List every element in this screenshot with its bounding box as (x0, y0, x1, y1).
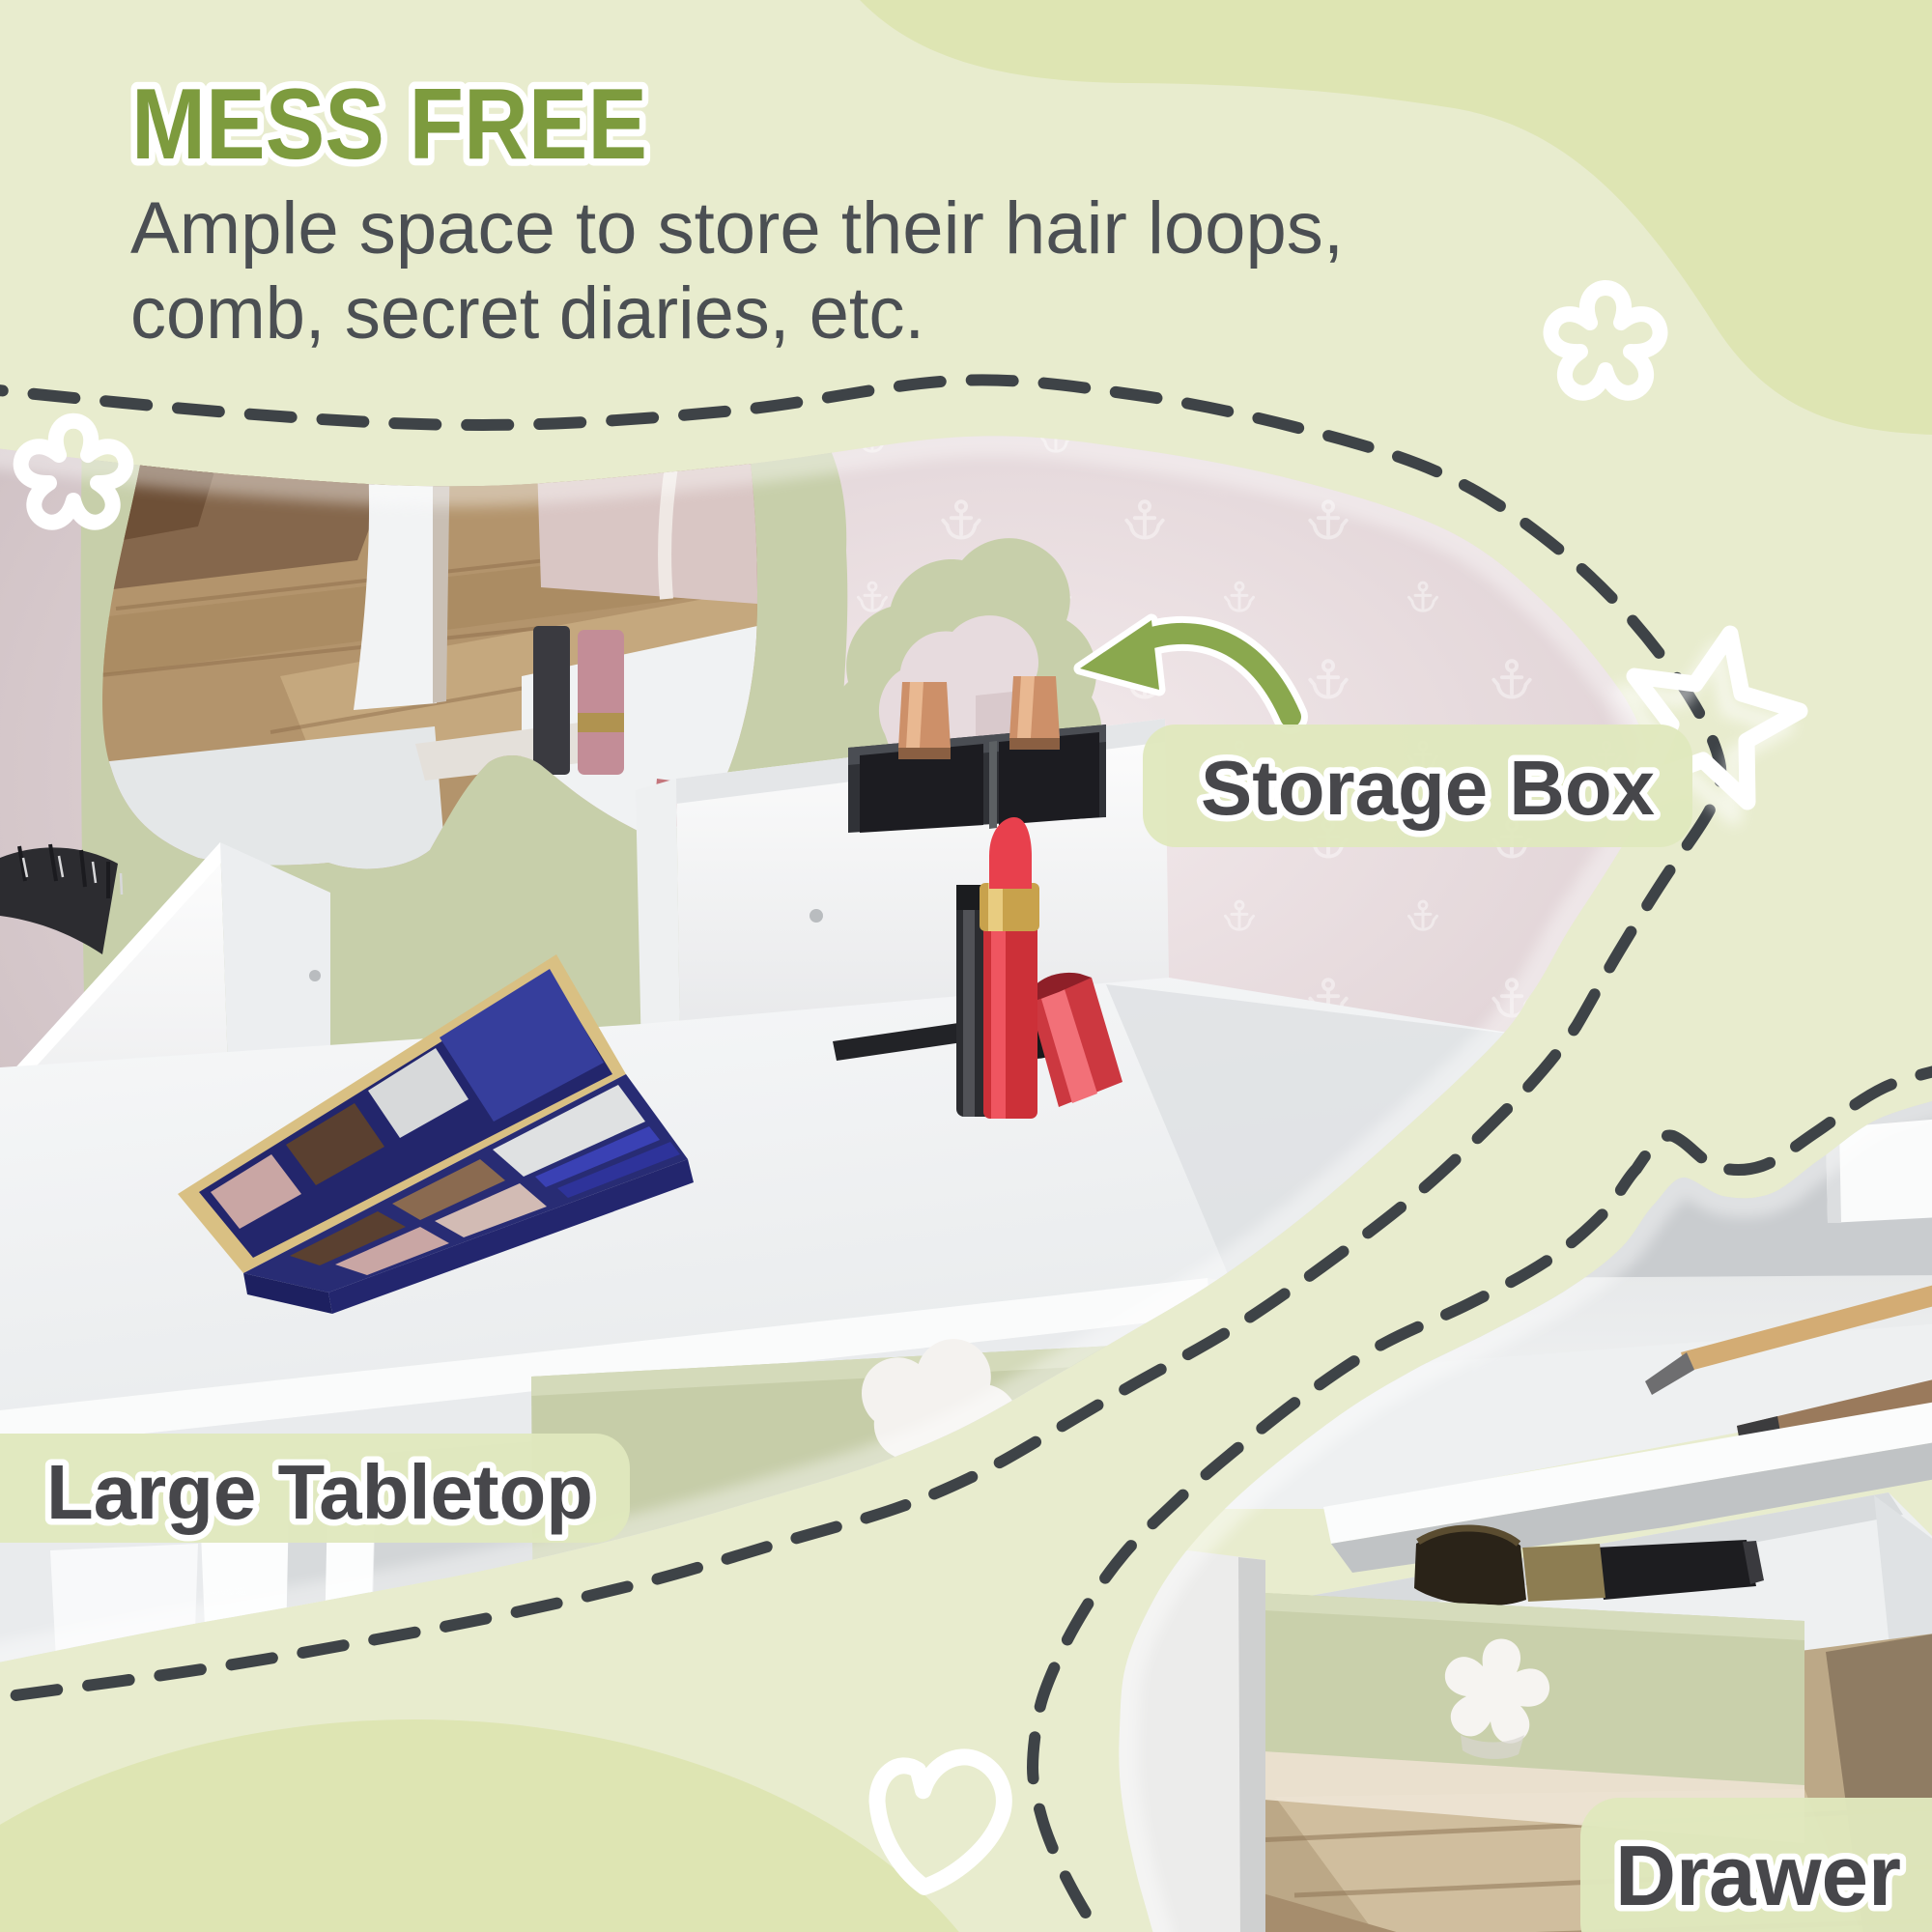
svg-text:Drawer: Drawer (1615, 1828, 1901, 1923)
svg-text:comb, secret diaries, etc.: comb, secret diaries, etc. (130, 272, 924, 355)
svg-text:Storage Box: Storage Box (1201, 745, 1655, 831)
svg-text:Ample space to store their hai: Ample space to store their hair loops, (130, 187, 1344, 270)
svg-text:MESS FREE: MESS FREE (131, 69, 647, 181)
svg-text:Large Tabletop: Large Tabletop (46, 1449, 593, 1535)
